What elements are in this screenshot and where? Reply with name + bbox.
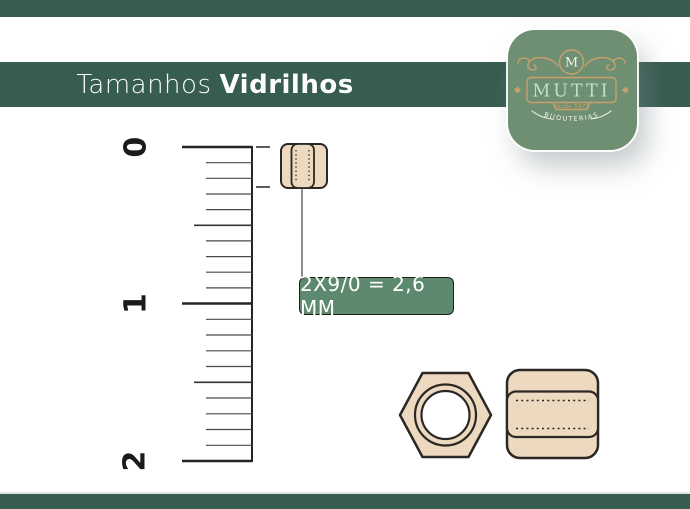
brand-name: MUTTI: [532, 82, 610, 102]
size-bracket-dashes: [256, 147, 270, 187]
measurement-label: 2X9/0 = 2,6 MM: [299, 277, 454, 315]
ruler: 0 1 2: [118, 137, 253, 472]
bead-sample-icon: [281, 144, 327, 188]
logo-art: M MUTTI desde 1973 BIJOUTERIAS: [508, 30, 637, 150]
infographic-canvas: TamanhosVidrilhos: [0, 0, 690, 509]
bead-side-view-icon: [507, 370, 598, 458]
bottom-accent-bar: [0, 492, 690, 509]
measurement-label-text: 2X9/0 = 2,6 MM: [300, 272, 453, 320]
ruler-number-1: 1: [119, 293, 154, 314]
frame-diamond-right-icon: [622, 86, 629, 93]
since-text: desde 1973: [553, 104, 589, 110]
logo-ornament-left-icon: [518, 58, 558, 70]
ruler-number-0: 0: [119, 137, 154, 158]
logo-badge: M MUTTI desde 1973 BIJOUTERIAS: [508, 30, 637, 150]
ruler-number-2: 2: [118, 451, 153, 472]
logo-monogram: M: [565, 56, 578, 71]
bead-front-view-icon: [400, 373, 491, 457]
logo-tagline: BIJOUTERIAS: [543, 111, 600, 124]
frame-diamond-left-icon: [514, 86, 521, 93]
logo-ornament-right-icon: [585, 58, 625, 70]
